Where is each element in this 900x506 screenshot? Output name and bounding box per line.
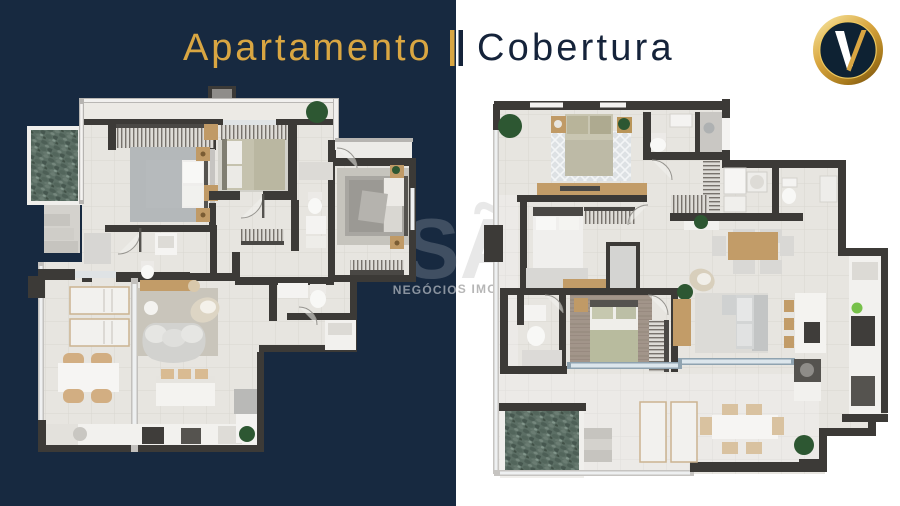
- svg-text:Apartamento: Apartamento: [183, 27, 432, 69]
- svg-text:Cobertura: Cobertura: [477, 27, 675, 69]
